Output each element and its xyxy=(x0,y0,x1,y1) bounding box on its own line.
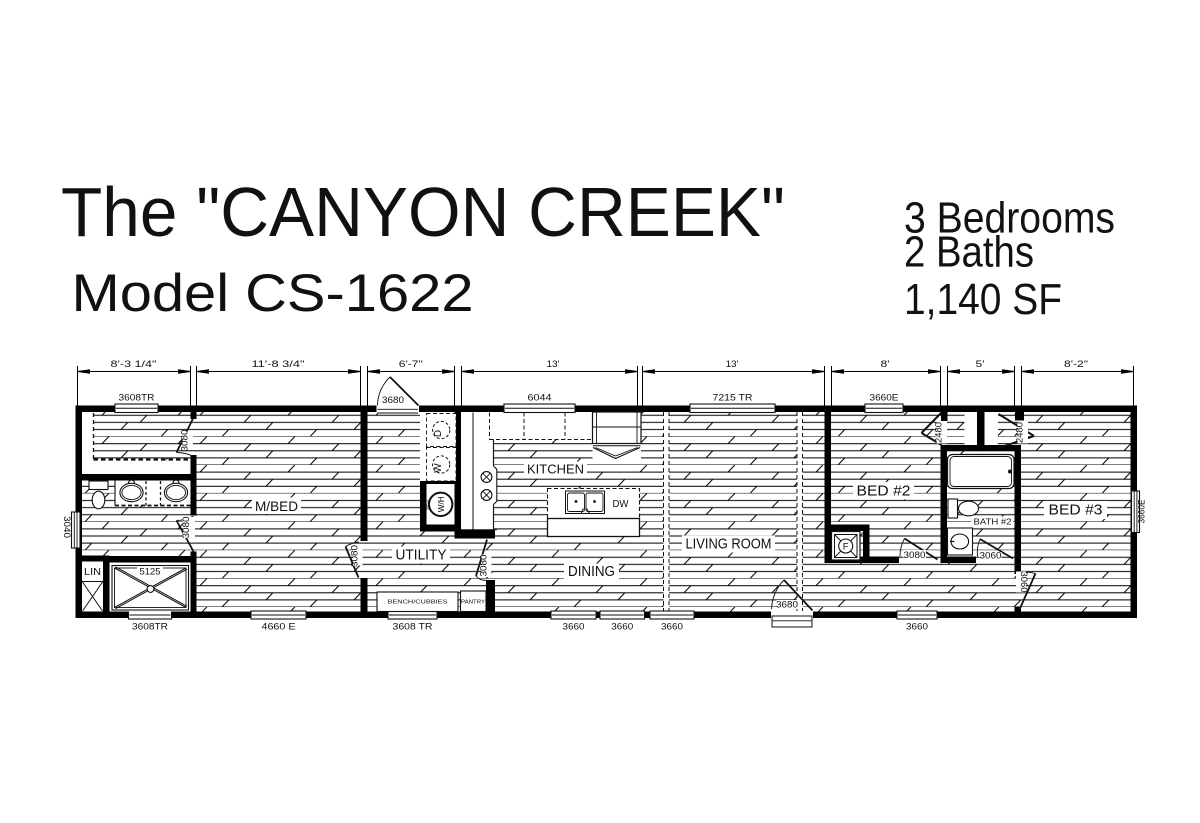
svg-text:UTILITY: UTILITY xyxy=(396,547,447,564)
svg-text:7215 TR: 7215 TR xyxy=(713,393,753,404)
svg-text:3080: 3080 xyxy=(180,430,191,452)
svg-text:The "CANYON CREEK": The "CANYON CREEK" xyxy=(61,173,785,251)
svg-text:3660: 3660 xyxy=(611,622,633,633)
svg-text:M/BED: M/BED xyxy=(255,498,298,514)
svg-text:3660E: 3660E xyxy=(870,393,899,404)
svg-text:6044: 6044 xyxy=(528,393,552,404)
svg-text:BED #3: BED #3 xyxy=(1049,502,1103,519)
svg-text:PANTRY: PANTRY xyxy=(461,600,485,606)
svg-text:3680: 3680 xyxy=(776,600,798,611)
svg-text:8': 8' xyxy=(881,359,890,370)
svg-text:KITCHEN: KITCHEN xyxy=(527,462,584,477)
svg-text:6'-7": 6'-7" xyxy=(399,359,423,370)
svg-text:3060: 3060 xyxy=(980,551,1002,562)
svg-text:30GAL: 30GAL xyxy=(426,498,431,510)
svg-text:3608TR: 3608TR xyxy=(132,622,168,633)
svg-text:3660: 3660 xyxy=(563,622,585,633)
svg-text:3608 TR: 3608 TR xyxy=(393,622,433,633)
svg-text:3680: 3680 xyxy=(382,395,404,406)
svg-text:3080: 3080 xyxy=(479,555,490,577)
svg-text:13': 13' xyxy=(547,359,560,370)
svg-text:2 Baths: 2 Baths xyxy=(904,228,1034,277)
svg-text:DW: DW xyxy=(613,499,630,510)
svg-text:DINING: DINING xyxy=(568,563,615,580)
svg-text:11'-8 3/4": 11'-8 3/4" xyxy=(252,359,305,370)
svg-text:F: F xyxy=(843,542,849,553)
svg-text:3660: 3660 xyxy=(661,622,683,633)
svg-text:W/H: W/H xyxy=(436,496,446,512)
svg-text:W: W xyxy=(433,463,444,473)
svg-text:3080: 3080 xyxy=(181,517,192,539)
svg-text:1,140 SF: 1,140 SF xyxy=(904,275,1062,324)
svg-text:2480: 2480 xyxy=(1015,422,1026,443)
svg-text:13': 13' xyxy=(726,359,739,370)
svg-text:BED #2: BED #2 xyxy=(857,483,911,500)
svg-text:5125: 5125 xyxy=(140,567,161,578)
svg-text:Model CS-1622: Model CS-1622 xyxy=(72,264,474,323)
svg-text:3080: 3080 xyxy=(350,545,361,567)
svg-text:3660E: 3660E xyxy=(1137,500,1148,524)
svg-text:D: D xyxy=(433,430,444,437)
svg-text:3040: 3040 xyxy=(61,516,72,538)
svg-text:BENCH/CUBBIES: BENCH/CUBBIES xyxy=(388,600,448,606)
svg-text:3080: 3080 xyxy=(904,550,926,561)
svg-text:3660: 3660 xyxy=(906,622,928,633)
svg-text:4660 E: 4660 E xyxy=(262,622,296,633)
svg-text:LIN: LIN xyxy=(84,567,101,578)
svg-text:LIVING ROOM: LIVING ROOM xyxy=(686,536,772,553)
svg-text:BATH #2: BATH #2 xyxy=(974,517,1012,527)
svg-text:8'-2": 8'-2" xyxy=(1064,359,1088,370)
svg-text:2480: 2480 xyxy=(934,422,945,443)
svg-text:5': 5' xyxy=(976,359,985,370)
svg-text:8'-3 1/4": 8'-3 1/4" xyxy=(111,359,157,370)
svg-text:3060: 3060 xyxy=(1018,572,1029,593)
svg-text:3608TR: 3608TR xyxy=(119,393,155,404)
